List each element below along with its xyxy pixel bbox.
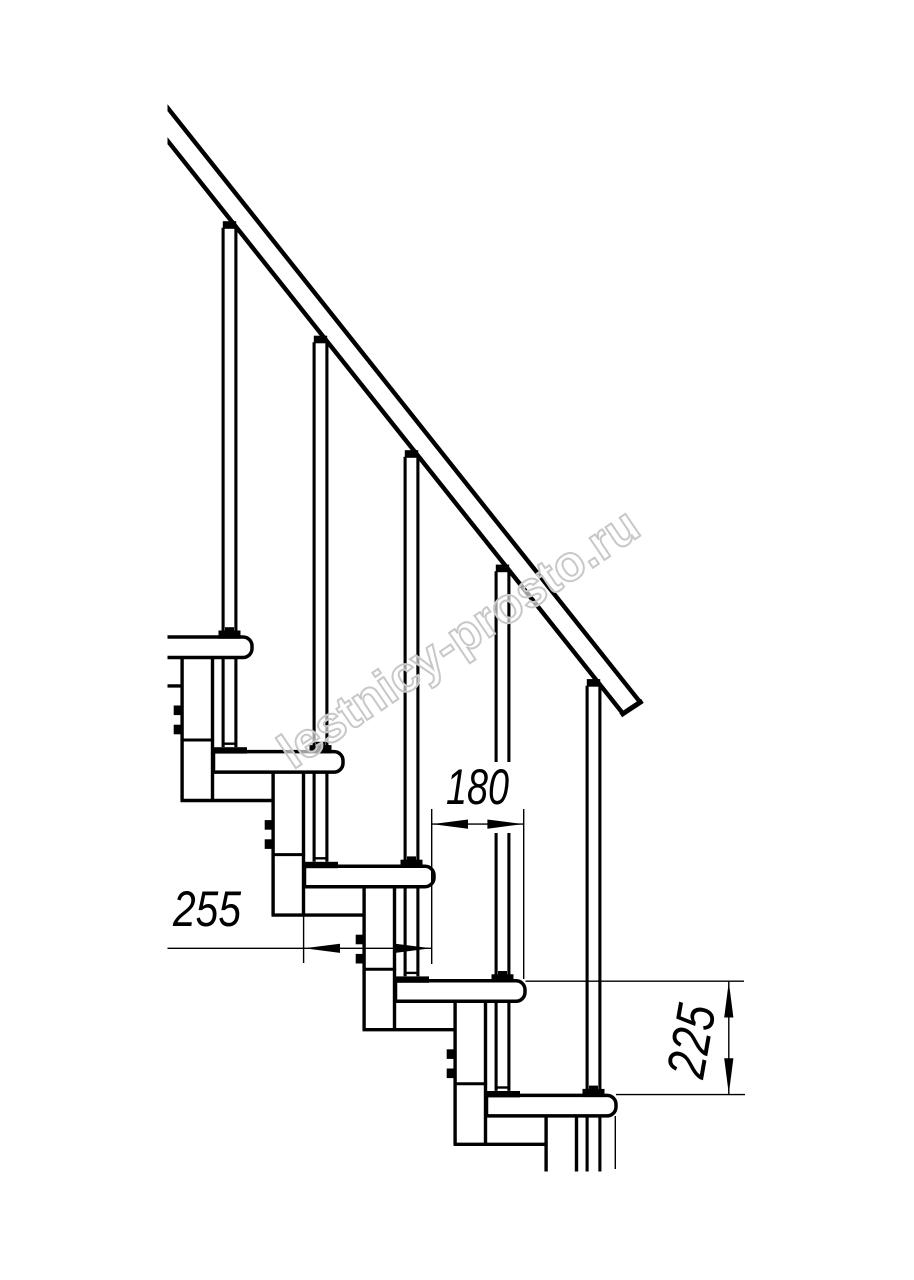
svg-text:255: 255 bbox=[172, 881, 241, 937]
svg-text:180: 180 bbox=[446, 759, 509, 815]
svg-text:225: 225 bbox=[656, 999, 728, 1083]
